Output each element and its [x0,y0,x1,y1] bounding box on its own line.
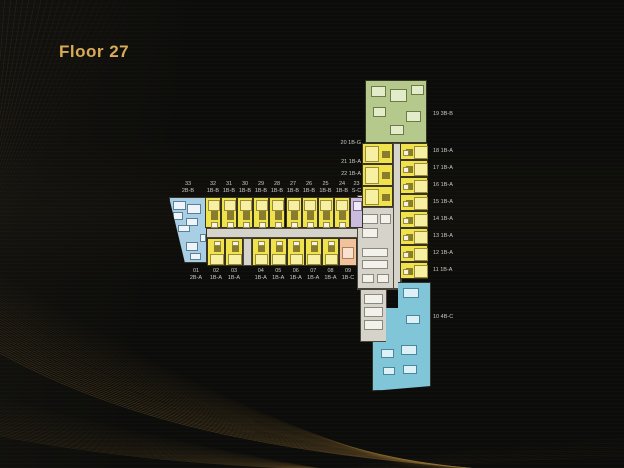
room-detail [414,265,428,278]
room-detail [307,222,314,228]
room-detail [362,274,374,283]
room-detail [403,150,409,156]
unit-15-1B-A[interactable] [400,194,428,211]
room-detail [291,211,298,220]
room-detail [403,218,409,224]
room-detail [362,214,378,224]
unit-32-1B-B[interactable] [205,197,221,228]
room-detail [328,241,335,247]
room-detail [382,151,390,158]
room-detail [208,200,220,212]
room-detail [243,222,250,228]
room-detail [320,200,332,212]
room-detail [323,222,330,228]
unit-06-1B-A[interactable] [287,238,305,266]
label-unit-20: 20 1B-G [331,140,361,147]
unit-19-3B-B[interactable] [365,80,427,143]
unit-08-1B-A[interactable] [322,238,339,266]
room-detail [325,254,338,265]
room-detail [406,315,420,324]
label-unit-19: 19 3B-B [433,111,463,118]
room-detail [256,200,268,212]
unit-02-1B-A[interactable] [207,238,225,266]
room-detail [190,253,201,260]
room-detail [339,222,346,228]
room-detail [382,172,390,179]
room-detail [307,254,321,265]
room-detail [173,201,186,210]
unit-29-1B-B[interactable] [253,197,269,228]
room-detail [243,211,250,220]
room-detail [173,212,183,220]
room-detail [178,225,190,232]
room-detail [365,146,379,162]
unit-04-1B-A[interactable] [252,238,270,266]
unit-03-1B-A[interactable] [225,238,243,266]
room-detail [293,241,300,247]
room-detail [401,345,417,355]
unit-13-1B-A[interactable] [400,228,428,245]
room-detail [275,211,282,220]
unit-12-1B-A[interactable] [400,245,428,262]
room-detail [214,241,221,247]
unit-11-1B-A[interactable] [400,262,428,279]
room-detail [259,222,266,228]
room-detail [414,146,428,159]
room-detail [377,274,389,283]
unit-16-1B-A[interactable] [400,177,428,194]
room-detail [210,254,224,265]
unit-33-01-2B[interactable] [169,197,207,263]
room-detail [390,89,407,102]
room-detail [362,260,388,269]
label-unit-21: 21 1B-A [331,159,361,166]
room-detail [414,197,428,210]
unit-24-1B-B[interactable] [334,197,350,228]
unit-14-1B-A[interactable] [400,211,428,228]
room-detail [323,211,330,220]
room-detail [414,180,428,193]
label-unit-10: 10 4B-C [433,314,463,321]
room-detail [353,201,362,211]
room-detail [272,254,286,265]
unit-26-1B-B[interactable] [302,197,318,228]
room-detail [403,201,409,207]
room-detail [224,200,236,212]
room-detail [381,349,394,358]
label-unit-15: 15 1B-A [433,199,463,206]
room-detail [364,294,383,304]
room-detail [307,211,314,220]
room-detail [259,211,266,220]
room-detail [311,241,318,247]
room-detail [406,111,421,122]
room-detail [390,125,404,135]
label-unit-33: 33 2B-B [176,181,200,194]
room-detail [258,241,265,247]
room-detail [403,269,409,275]
room-detail [336,200,348,212]
unit-28-1B-B[interactable] [269,197,285,228]
unit-25-1B-B[interactable] [318,197,334,228]
label-unit-13: 13 1B-A [433,233,463,240]
label-unit-16: 16 1B-A [433,182,463,189]
room-detail [382,194,390,201]
unit-09-1B-C[interactable] [339,238,357,266]
unit-05-1B-A[interactable] [270,238,288,266]
core-bottom-stair [243,238,252,266]
label-unit-18: 18 1B-A [433,148,463,155]
label-unit-14: 14 1B-A [433,216,463,223]
label-unit-09: 09 1B-C [336,268,360,281]
room-detail [186,242,198,251]
label-unit-23: 23 S-C [345,181,369,194]
label-unit-17: 17 1B-A [433,165,463,172]
unit-17-1B-A[interactable] [400,160,428,177]
room-detail [373,107,386,117]
room-detail [342,247,354,259]
room-detail [362,228,378,238]
room-detail [227,211,234,220]
unit-31-1B-B[interactable] [221,197,237,228]
room-detail [255,254,269,265]
room-detail [380,214,391,224]
room-detail [403,365,417,374]
label-unit-12: 12 1B-A [433,250,463,257]
room-detail [211,222,218,228]
room-detail [411,85,424,95]
room-detail [200,234,206,242]
room-detail [211,211,218,220]
room-detail [232,241,239,247]
room-detail [364,307,383,317]
room-detail [414,214,428,227]
room-detail [276,241,283,247]
room-detail [364,320,383,330]
label-unit-11: 11 1B-A [433,267,463,274]
room-detail [187,204,201,214]
unit-30-1B-B[interactable] [237,197,253,228]
room-detail [403,167,409,173]
room-detail [288,200,300,212]
floor-plan-page: Floor 27 33 2B-B32 1B-B31 1B-B30 1B-B29 … [0,0,624,468]
room-detail [403,252,409,258]
unit-20-1B-G[interactable] [362,143,393,164]
room-detail [291,222,298,228]
room-detail [414,231,428,244]
room-detail [414,163,428,176]
room-detail [403,235,409,241]
core-above-cyan [360,289,387,342]
unit-07-1B-A[interactable] [305,238,323,266]
room-detail [383,367,395,375]
label-unit-03: 03 1B-A [222,268,246,281]
room-detail [403,288,419,298]
unit-27-1B-B[interactable] [286,197,302,228]
room-detail [228,254,242,265]
unit-18-1B-A[interactable] [400,143,428,160]
room-detail [290,254,304,265]
room-detail [227,222,234,228]
room-detail [240,200,252,212]
room-detail [275,222,282,228]
room-detail [339,211,346,220]
room-detail [371,86,386,97]
room-detail [272,200,284,212]
room-detail [414,248,428,261]
room-detail [304,200,316,212]
label-unit-22: 22 1B-A [331,171,361,178]
room-detail [403,184,409,190]
room-detail [362,248,388,257]
floor-plan-diagram: 33 2B-B32 1B-B31 1B-B30 1B-B29 1B-B28 1B… [0,0,624,468]
